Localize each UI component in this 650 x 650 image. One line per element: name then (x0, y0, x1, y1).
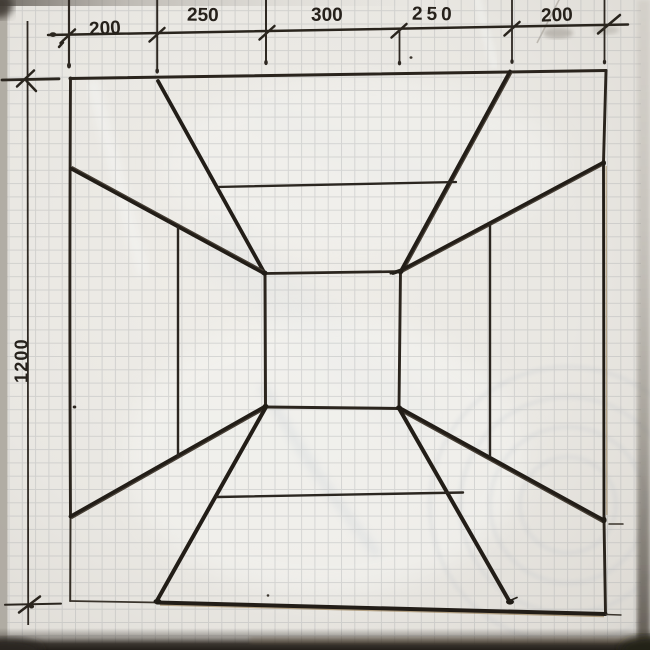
svg-text:250: 250 (412, 4, 456, 26)
svg-text:300: 300 (311, 5, 343, 26)
svg-text:200: 200 (89, 17, 122, 40)
svg-text:200: 200 (541, 4, 573, 26)
svg-text:1200: 1200 (12, 338, 32, 383)
svg-text:250: 250 (187, 5, 219, 27)
